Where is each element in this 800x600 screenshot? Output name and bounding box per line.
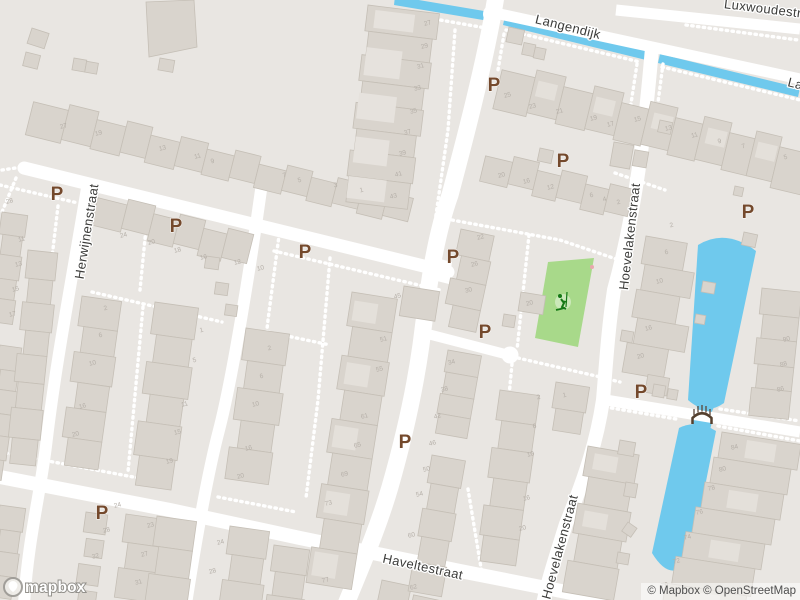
svg-text:mapbox: mapbox bbox=[25, 579, 86, 596]
svg-text:P: P bbox=[96, 503, 109, 524]
svg-text:P: P bbox=[479, 322, 492, 343]
svg-text:P: P bbox=[557, 151, 570, 172]
svg-text:P: P bbox=[742, 202, 755, 223]
svg-text:P: P bbox=[447, 247, 460, 268]
svg-text:P: P bbox=[488, 75, 501, 96]
svg-text:P: P bbox=[170, 216, 183, 237]
svg-text:P: P bbox=[299, 242, 312, 263]
svg-text:P: P bbox=[51, 184, 64, 205]
svg-text:P: P bbox=[635, 382, 648, 403]
svg-text:P: P bbox=[399, 432, 412, 453]
